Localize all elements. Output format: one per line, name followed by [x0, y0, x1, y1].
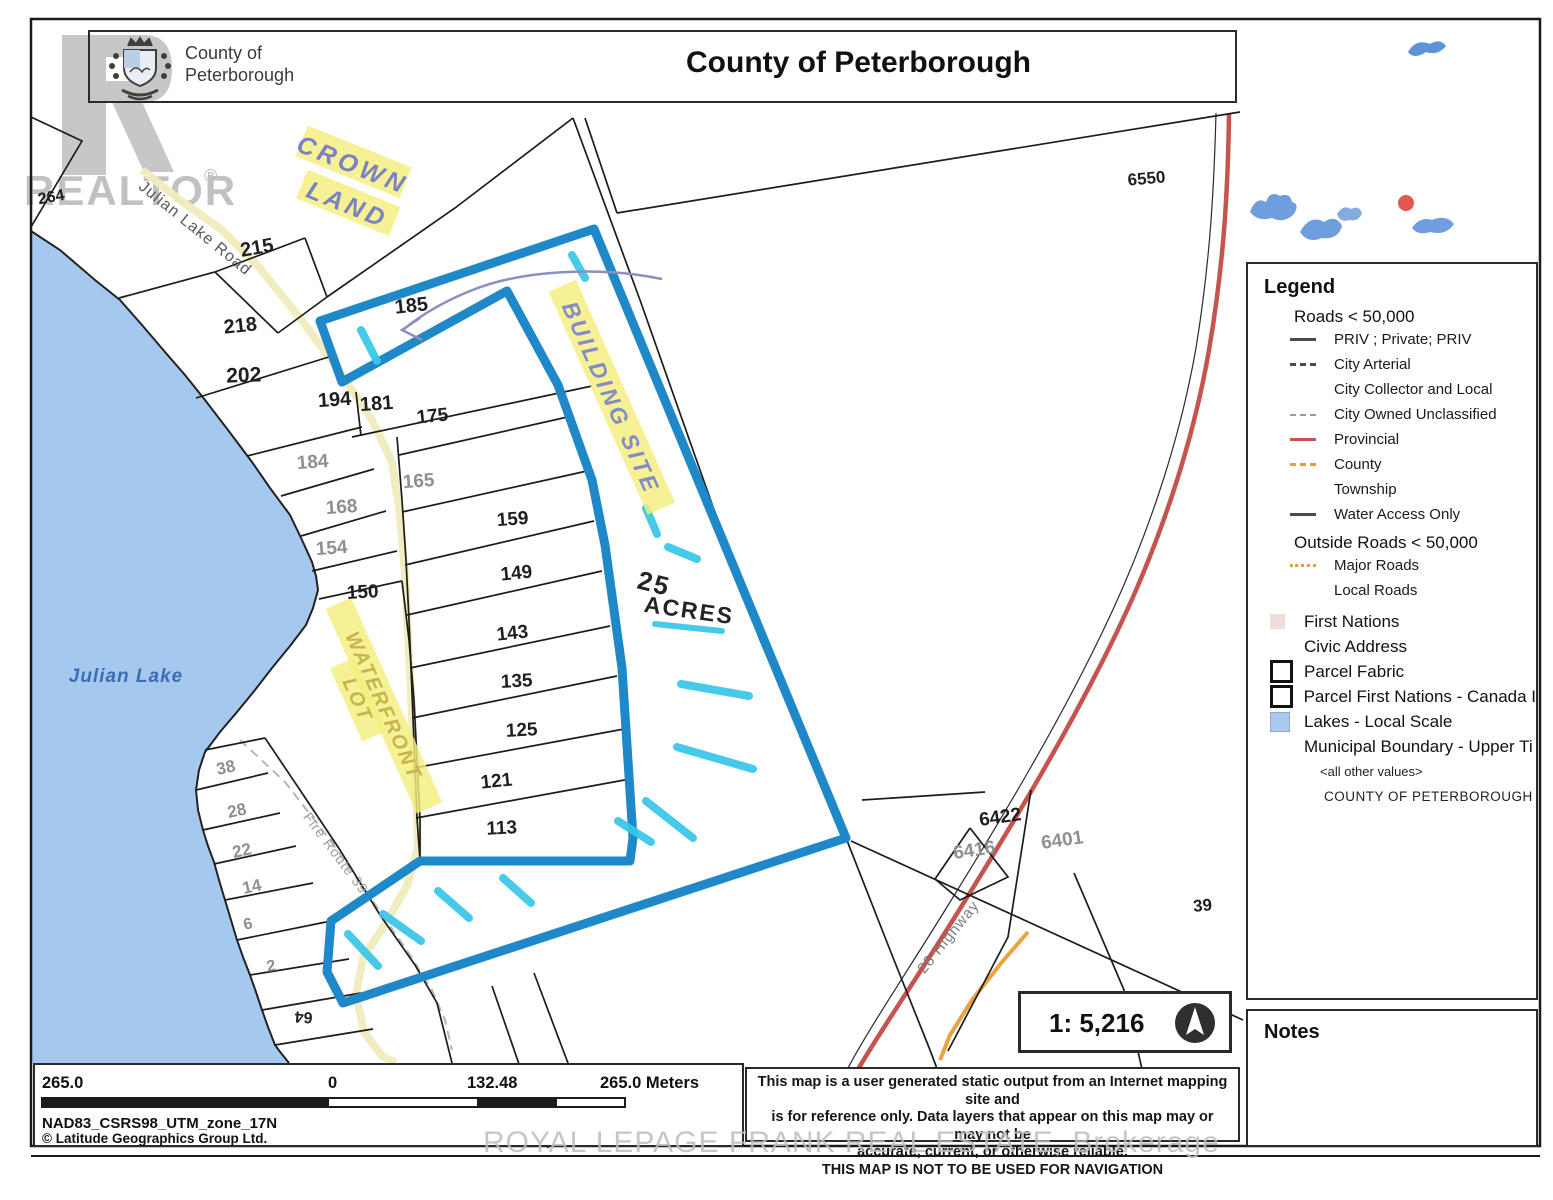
parcel-label: 184	[296, 451, 330, 474]
line-swatch-icon	[1290, 463, 1324, 466]
building-site-text: BUILDING SITE	[557, 297, 665, 497]
scale-bar-segment	[327, 1097, 479, 1108]
parcel-label: 168	[325, 496, 358, 519]
parcel-label: 28	[226, 799, 248, 822]
legend-item-parcel-first-nations: Parcel First Nations - Canada I	[1264, 684, 1536, 709]
area-swatch-icon	[1270, 614, 1296, 629]
parcel-label: 135	[500, 670, 533, 693]
county-crest-logo	[100, 34, 176, 104]
legend-item-city-collector: City Collector and Local	[1290, 377, 1536, 402]
scale-bar-segment	[555, 1097, 626, 1108]
registered-symbol: ®	[204, 166, 217, 186]
legend-title: Legend	[1264, 276, 1536, 299]
parcel-label: 121	[480, 769, 514, 793]
parcel-label: 14	[241, 875, 264, 898]
header-org-line2: Peterborough	[185, 64, 294, 86]
parcel-label: 113	[486, 817, 518, 840]
highway-28-west-edge	[848, 113, 1216, 1068]
parcel-label: 38	[215, 756, 237, 779]
parcel-label: 143	[496, 621, 530, 645]
notes-panel: Notes	[1246, 1009, 1538, 1147]
line-swatch-icon	[1290, 438, 1324, 441]
parcel-label: 6	[242, 915, 254, 933]
red-dot-doodle	[1398, 195, 1414, 211]
legend-item-major-roads: Major Roads	[1290, 553, 1536, 578]
copyright-note: © Latitude Geographics Group Ltd.	[42, 1131, 267, 1146]
disclaimer-line4: THIS MAP IS NOT TO BE USED FOR NAVIGATIO…	[755, 1162, 1230, 1180]
area-swatch-icon	[1270, 685, 1296, 708]
legend-outside-heading: Outside Roads < 50,000	[1294, 533, 1536, 553]
scale-ratio: 1: 5,216	[1049, 1008, 1144, 1039]
map-label: 28 Highway	[914, 897, 983, 976]
julian-lake	[31, 231, 318, 1063]
parcel-label: 202	[226, 363, 262, 387]
parcel-label: 149	[500, 561, 534, 585]
parcel-label: 154	[315, 537, 349, 560]
waterfront-lot-annotation-line1: WATERFRONT	[326, 598, 443, 814]
parcel-label: 6550	[1127, 167, 1166, 189]
header-org-name: County of Peterborough	[185, 42, 294, 86]
legend-item-city-owned: City Owned Unclassified	[1290, 402, 1536, 427]
scale-bar-segment	[41, 1097, 327, 1108]
legend-item-lakes: Lakes - Local Scale	[1264, 709, 1536, 734]
scale-label-right: 265.0 Meters	[600, 1074, 699, 1093]
area-swatch-icon	[1270, 660, 1296, 683]
scale-label-left: 265.0	[42, 1074, 83, 1093]
parcel-label: 175	[416, 404, 450, 428]
map-label: Julian Lake	[69, 666, 184, 687]
area-swatch-icon	[1270, 712, 1296, 732]
building-site-annotation: BUILDING SITE	[549, 280, 676, 515]
legend-item-water-access: Water Access Only	[1290, 502, 1536, 527]
parcel-label: 150	[346, 581, 379, 604]
parcel-label: 215	[239, 234, 276, 261]
legend-item-township: Township	[1290, 477, 1536, 502]
line-swatch-icon	[1290, 338, 1324, 341]
parcel-label: 185	[394, 293, 429, 318]
parcel-label: 218	[223, 313, 258, 338]
projection-datum: NAD83_CSRS98_UTM_zone_17N	[42, 1115, 277, 1132]
header-bar: County of Peterborough County of Peterbo…	[88, 30, 1237, 103]
legend-item-parcel-fabric: Parcel Fabric	[1264, 659, 1536, 684]
scale-label-zero: 0	[328, 1074, 337, 1093]
parcel-label: 39	[1192, 895, 1213, 916]
legend-county-value: COUNTY OF PETERBOROUGH	[1324, 789, 1536, 804]
line-swatch-icon	[1290, 513, 1324, 516]
disclaimer-line1: This map is a user generated static outp…	[755, 1074, 1230, 1109]
scale-label-mid: 132.48	[467, 1074, 517, 1093]
legend-item-first-nations: First Nations	[1264, 609, 1536, 634]
page-title: County of Peterborough	[390, 46, 1327, 80]
line-swatch-icon	[1290, 564, 1324, 567]
parcel-label: 125	[505, 719, 538, 742]
legend-item-municipal-boundary: Municipal Boundary - Upper Ti	[1264, 734, 1536, 759]
parcel-label: 181	[359, 392, 394, 416]
parcel-label: 2	[265, 957, 277, 975]
brokerage-watermark: ROYAL LEPAGE FRANK REAL ESTATE, Brokerag…	[483, 1126, 1220, 1160]
legend-roads-heading: Roads < 50,000	[1294, 307, 1536, 327]
legend-item-civic-address: Civic Address	[1264, 634, 1536, 659]
legend-item-city-arterial: City Arterial	[1290, 352, 1536, 377]
parcel-label: 165	[402, 470, 436, 493]
highway-28	[852, 113, 1229, 1080]
legend-all-other-values: <all other values>	[1320, 764, 1536, 779]
legend-panel: Legend Roads < 50,000 PRIV ; Private; PR…	[1246, 262, 1538, 1000]
legend-item-local-roads: Local Roads	[1290, 578, 1536, 603]
parcel-label: 194	[317, 388, 353, 412]
parcel-label: 6422	[978, 804, 1023, 831]
parcel-label: 22	[231, 839, 253, 862]
parcel-label: 64	[294, 1007, 313, 1025]
line-swatch-icon	[1290, 363, 1324, 366]
legend-item-priv: PRIV ; Private; PRIV	[1290, 327, 1536, 352]
header-org-line1: County of	[185, 42, 294, 64]
map-page: REALTOR ®	[0, 0, 1553, 1200]
north-arrow-icon	[1173, 1001, 1217, 1045]
parcel-label: 6401	[1040, 827, 1085, 854]
scale-ratio-box: 1: 5,216	[1018, 991, 1232, 1053]
parcel-label: 159	[496, 508, 529, 531]
legend-item-county: County	[1290, 452, 1536, 477]
line-swatch-icon	[1290, 414, 1324, 416]
scale-bar-segment	[479, 1097, 555, 1108]
legend-item-provincial: Provincial	[1290, 427, 1536, 452]
notes-title: Notes	[1264, 1021, 1536, 1044]
